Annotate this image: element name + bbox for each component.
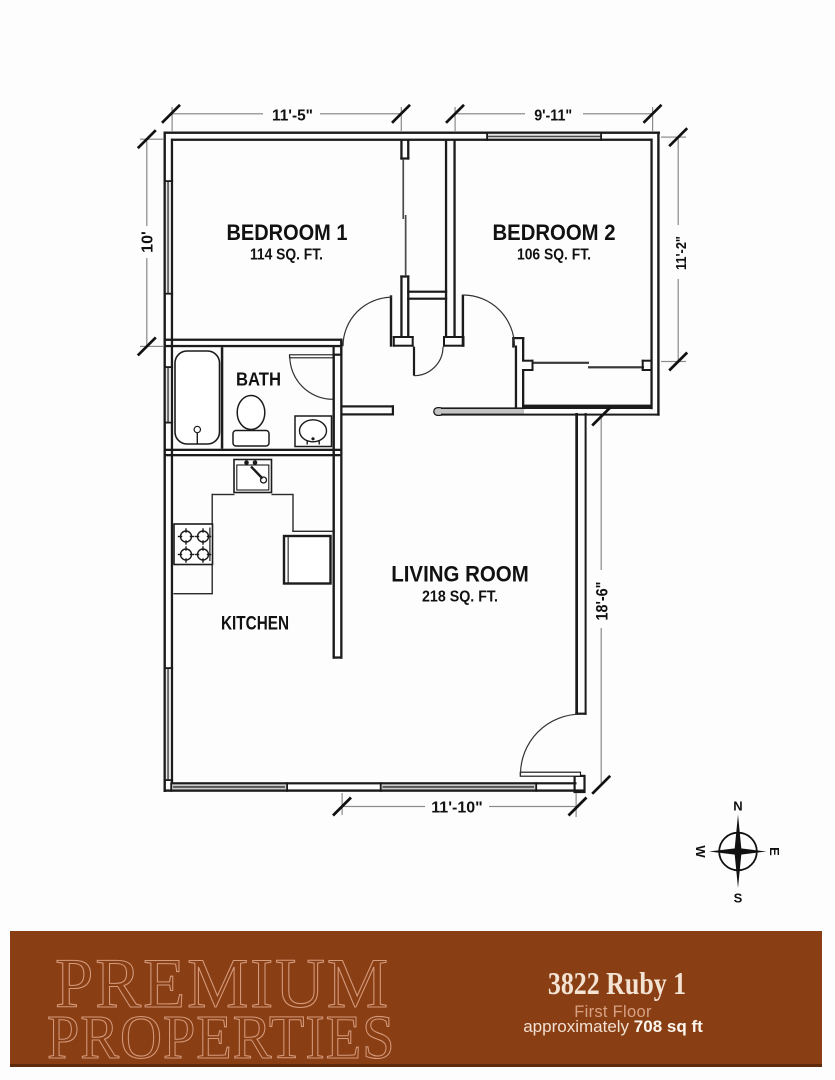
svg-text:S: S — [734, 891, 743, 906]
svg-text:W: W — [693, 845, 708, 858]
svg-text:BATH: BATH — [236, 369, 281, 390]
svg-text:11'-2": 11'-2" — [673, 236, 690, 270]
svg-text:11'-5": 11'-5" — [272, 108, 313, 125]
svg-text:LIVING ROOM: LIVING ROOM — [391, 562, 529, 587]
svg-text:106 SQ. FT.: 106 SQ. FT. — [517, 247, 591, 264]
svg-text:18'-6": 18'-6" — [593, 582, 612, 621]
svg-text:BEDROOM 2: BEDROOM 2 — [493, 220, 616, 245]
svg-text:KITCHEN: KITCHEN — [221, 614, 289, 635]
svg-text:E: E — [767, 847, 782, 856]
svg-text:11'-10": 11'-10" — [431, 800, 482, 817]
svg-text:218 SQ. FT.: 218 SQ. FT. — [422, 589, 498, 606]
svg-text:9'-11": 9'-11" — [534, 108, 572, 125]
svg-text:BEDROOM 1: BEDROOM 1 — [227, 220, 348, 245]
svg-text:10': 10' — [140, 231, 157, 253]
svg-text:114 SQ. FT.: 114 SQ. FT. — [250, 247, 323, 264]
svg-text:N: N — [733, 799, 742, 814]
